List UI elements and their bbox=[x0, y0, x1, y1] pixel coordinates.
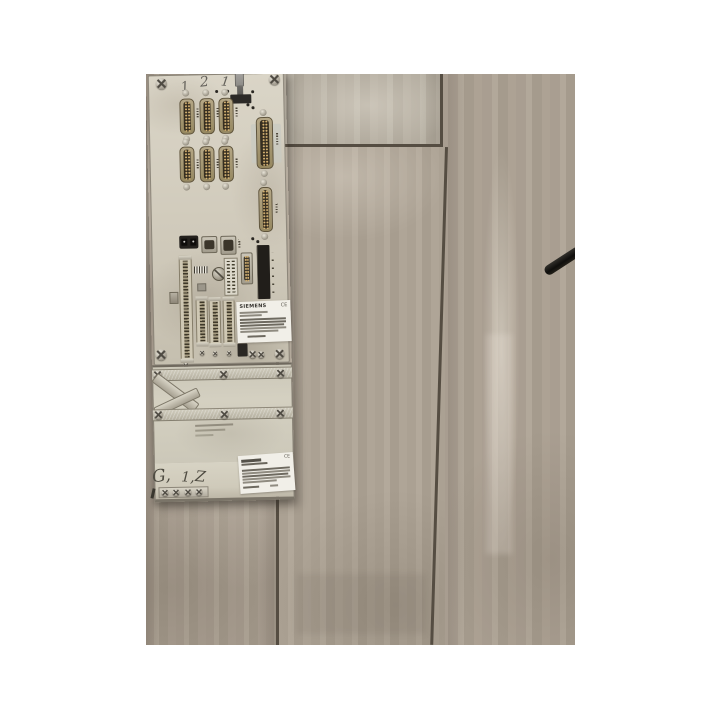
floor-light-streak bbox=[486, 334, 512, 554]
panel-hole bbox=[251, 106, 254, 109]
db15-connector bbox=[241, 252, 254, 284]
db25-connector bbox=[179, 98, 195, 134]
db25-connector bbox=[179, 146, 195, 182]
card-slot bbox=[256, 245, 270, 299]
bracket-screw bbox=[195, 488, 202, 495]
ce-mark: CE bbox=[284, 454, 290, 459]
port-label-marks bbox=[276, 203, 278, 213]
db25-connector bbox=[218, 98, 234, 134]
panel-hole bbox=[251, 90, 254, 93]
terminal-strip bbox=[195, 296, 208, 346]
terminal-strip bbox=[222, 297, 235, 347]
panel-hole bbox=[256, 240, 259, 243]
small-component bbox=[197, 283, 206, 291]
handwritten-mark: G, bbox=[151, 465, 171, 487]
db25-connector bbox=[199, 146, 215, 182]
control-module: 1 2 1 bbox=[146, 74, 295, 502]
port-label-marks bbox=[236, 158, 238, 168]
connector-standoff bbox=[260, 179, 267, 186]
db25-connector bbox=[258, 187, 273, 232]
handwritten-mark: 1, bbox=[181, 469, 195, 486]
connector-standoff bbox=[183, 184, 190, 191]
db9-connector bbox=[201, 236, 217, 253]
toggle-switch-body bbox=[235, 74, 244, 87]
floor-tile-top-middle bbox=[279, 74, 440, 144]
barcode-sticker bbox=[194, 266, 208, 273]
photo-of-device-on-floor: 1 2 1 bbox=[146, 74, 575, 645]
panel-hole bbox=[215, 90, 218, 93]
floor-tile-middle bbox=[279, 147, 445, 645]
label-brand-text: SIEMENS bbox=[239, 303, 266, 310]
product-label: SIEMENS CE bbox=[236, 300, 292, 343]
connector-standoff bbox=[182, 90, 189, 97]
ce-mark: CE bbox=[281, 302, 288, 308]
handwritten-mark: Z bbox=[194, 467, 206, 486]
small-connector bbox=[169, 292, 178, 304]
port-label-marks bbox=[235, 107, 237, 117]
db25-connector bbox=[199, 98, 215, 134]
terminal-strip bbox=[208, 297, 221, 347]
pin-header-strip bbox=[224, 258, 239, 296]
panel-hole bbox=[246, 103, 249, 106]
floor-dark-patch bbox=[296, 574, 426, 634]
port-label-marks bbox=[276, 133, 278, 145]
panel-hole bbox=[251, 237, 254, 240]
port-label-marks bbox=[217, 158, 219, 168]
grout-line-vertical-right-top bbox=[440, 74, 443, 145]
terminal-strip bbox=[179, 256, 194, 363]
db9-connector bbox=[220, 236, 236, 255]
handwritten-mark: 2 bbox=[199, 74, 210, 91]
port-label-marks bbox=[197, 158, 199, 168]
db37-connector bbox=[256, 117, 274, 169]
db25-connector bbox=[218, 146, 234, 182]
black-connector-block bbox=[237, 343, 247, 356]
strip-screw bbox=[227, 351, 232, 356]
connector-standoff bbox=[261, 170, 268, 177]
rating-label: CE bbox=[238, 452, 296, 494]
strip-screw bbox=[200, 350, 205, 355]
port-label-marks bbox=[238, 240, 240, 248]
grout-line-horizontal bbox=[276, 144, 443, 147]
port-label-marks bbox=[216, 107, 218, 117]
port-label-marks bbox=[196, 107, 198, 117]
strip-screw bbox=[213, 351, 218, 356]
page-background: { "scene": { "type": "photograph", "subj… bbox=[0, 0, 720, 720]
dual-socket-connector bbox=[179, 235, 198, 248]
connector-standoff bbox=[182, 139, 189, 146]
